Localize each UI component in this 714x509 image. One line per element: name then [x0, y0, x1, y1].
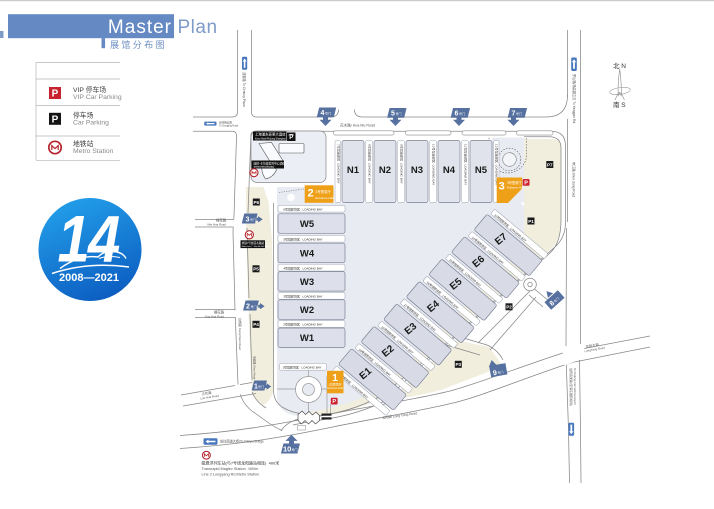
svg-text:Mei Hua Road: Mei Hua Road [208, 223, 227, 227]
svg-text:Plan: Plan [178, 17, 218, 38]
svg-text:2: 2 [246, 304, 250, 311]
svg-text:7号馆装卸区 LOADING BAY: 7号馆装卸区 LOADING BAY [337, 144, 342, 184]
svg-text:6号馆卸货区 LOADING BAY: 6号馆卸货区 LOADING BAY [283, 206, 322, 211]
svg-text:号门: 号门 [258, 384, 264, 389]
svg-text:W2: W2 [300, 305, 314, 316]
svg-text:P: P [332, 399, 336, 405]
svg-text:P: P [524, 180, 528, 186]
svg-text:N4: N4 [443, 165, 456, 176]
svg-text:4: 4 [321, 110, 325, 117]
svg-text:N3: N3 [411, 165, 423, 176]
svg-text:号门: 号门 [251, 304, 257, 309]
svg-text:Line 2 Longyang Rd.Metro Stati: Line 2 Longyang Rd.Metro Station [202, 473, 260, 477]
svg-text:4号馆卸货区 LOADING BAY: 4号馆卸货区 LOADING BAY [283, 265, 322, 270]
svg-text:北 N: 北 N [613, 62, 626, 70]
svg-text:地铁7号线花木路站: 地铁7号线花木路站 [242, 241, 265, 245]
svg-text:停车场: 停车场 [73, 111, 94, 120]
svg-text:Transrapid Maglev Station /40: Transrapid Maglev Station /400m [202, 467, 259, 471]
svg-text:To Gongjing Road: To Gongjing Road [219, 125, 239, 128]
svg-text:Entrance Hall: Entrance Hall [507, 186, 524, 190]
svg-text:11号馆装卸区 LOADING BAY: 11号馆装卸区 LOADING BAY [464, 144, 469, 185]
svg-text:W5: W5 [300, 219, 315, 230]
svg-text:P5: P5 [253, 267, 259, 272]
svg-text:9号馆装卸区 LOADING BAY: 9号馆装卸区 LOADING BAY [400, 144, 405, 184]
svg-text:号门: 号门 [325, 111, 331, 116]
svg-text:号门: 号门 [459, 111, 465, 116]
svg-text:W4: W4 [300, 248, 315, 259]
svg-text:Metro Station: Metro Station [73, 148, 114, 155]
svg-text:号门: 号门 [516, 111, 522, 116]
svg-text:3号登录厅: 3号登录厅 [507, 180, 522, 185]
svg-text:W1: W1 [300, 333, 315, 344]
svg-text:罗山路/杨高路立交 To Yanggao Rd.: 罗山路/杨高路立交 To Yanggao Rd. [572, 74, 577, 124]
svg-text:8号馆装卸区 LOADING BAY: 8号馆装卸区 LOADING BAY [368, 144, 373, 184]
svg-text:3: 3 [246, 217, 250, 224]
svg-text:P2: P2 [506, 305, 512, 310]
svg-text:5号馆卸货区 LOADING BAY: 5号馆卸货区 LOADING BAY [283, 236, 322, 241]
svg-text:N2: N2 [379, 165, 391, 176]
svg-text:Metro Line 7 - Hua Mu Rd. Stat: Metro Line 7 - Hua Mu Rd. Station [242, 245, 271, 248]
svg-text:申迪路 Shen Road: 申迪路 Shen Road [253, 356, 257, 380]
svg-text:号门: 号门 [292, 447, 298, 452]
svg-text:3: 3 [499, 181, 505, 193]
svg-text:迎春路 To Century Plaza: 迎春路 To Century Plaza [242, 72, 247, 107]
svg-text:P: P [52, 114, 59, 125]
svg-text:P3: P3 [455, 362, 461, 367]
svg-text:P6: P6 [253, 200, 259, 205]
svg-text:上海浦东嘉里大酒店: 上海浦东嘉里大酒店 [255, 132, 286, 137]
svg-text:申江路 Shen Jiang Road: 申江路 Shen Jiang Road [572, 162, 577, 197]
svg-text:Entrance Hall: Entrance Hall [327, 386, 343, 390]
svg-text:1号登录厅: 1号登录厅 [328, 382, 341, 387]
svg-text:花木路/ Hua Mu Road: 花木路/ Hua Mu Road [340, 122, 375, 127]
svg-text:P1: P1 [528, 219, 534, 224]
svg-text:白杨路 Fang Dian Road: 白杨路 Fang Dian Road [238, 318, 243, 350]
svg-text:VIP Car Parking: VIP Car Parking [73, 94, 122, 101]
svg-text:康桥-卡尔森世界中心酒店: 康桥-卡尔森世界中心酒店 [254, 161, 286, 165]
svg-text:号门: 号门 [396, 111, 402, 116]
svg-text:2号登录厅: 2号登录厅 [316, 189, 332, 194]
svg-text:N1: N1 [347, 165, 360, 176]
svg-text:10号馆装卸区 LOADING BAY: 10号馆装卸区 LOADING BAY [432, 144, 437, 185]
svg-text:2: 2 [308, 188, 314, 200]
svg-text:10: 10 [283, 445, 291, 454]
svg-text:Ying Hua Road: Ying Hua Road [205, 315, 225, 319]
svg-text:2008—2021: 2008—2021 [59, 272, 119, 284]
svg-text:6: 6 [455, 111, 459, 118]
svg-text:地铁站: 地铁站 [73, 139, 94, 148]
svg-text:P7: P7 [547, 162, 553, 167]
svg-text:前往南浦大桥/To Nanpu Bridge: 前往南浦大桥/To Nanpu Bridge [220, 438, 264, 443]
svg-text:To Pudong International Airpor: To Pudong International Airport [573, 368, 577, 405]
svg-text:号门: 号门 [250, 217, 256, 222]
svg-text:VIP 停车场: VIP 停车场 [73, 85, 106, 94]
svg-text:7: 7 [512, 111, 516, 118]
svg-text:磁悬浮列车站(与7号线龙阳路站相连) 400米: 磁悬浮列车站(与7号线龙阳路站相连) 400米 [202, 460, 280, 466]
svg-text:N5: N5 [475, 165, 488, 176]
svg-text:P: P [52, 89, 59, 100]
svg-text:2号馆卸货区 LOADING BAY: 2号馆卸货区 LOADING BAY [283, 322, 322, 327]
svg-text:Kerry Hotel Pudong Shanghai: Kerry Hotel Pudong Shanghai [255, 137, 286, 140]
svg-text:Car Parking: Car Parking [73, 120, 109, 127]
svg-text:5: 5 [391, 111, 395, 118]
svg-text:3号馆卸货区 LOADING BAY: 3号馆卸货区 LOADING BAY [283, 294, 322, 299]
svg-text:号门: 号门 [497, 369, 504, 375]
svg-text:Master: Master [108, 17, 172, 38]
svg-text:Entrance Hall: Entrance Hall [316, 196, 334, 200]
svg-text:南 S: 南 S [613, 100, 626, 109]
svg-text:P4: P4 [253, 322, 259, 327]
svg-text:P: P [289, 135, 293, 141]
svg-text:展馆分布图: 展馆分布图 [110, 39, 167, 50]
svg-text:W3: W3 [300, 277, 314, 288]
svg-text:1号馆卸货区 LOADING BAY: 1号馆卸货区 LOADING BAY [282, 365, 321, 370]
